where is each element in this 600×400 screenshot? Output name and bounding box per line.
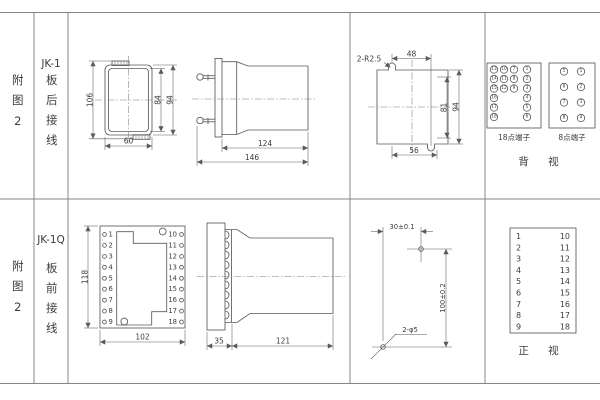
r1-terminal-18: 13 10 7 1 14 11 8 2 15 12 9 3 16 4 17 5 …	[487, 63, 541, 128]
svg-text:2: 2	[526, 76, 529, 82]
technical-drawing-canvas: 106 84 94 60 124 146	[0, 0, 600, 400]
r2-wiring-label: 板前接线	[45, 262, 57, 342]
dim-102: 102	[135, 333, 150, 342]
svg-text:8: 8	[513, 76, 516, 82]
svg-text:14: 14	[168, 274, 177, 282]
svg-text:8: 8	[563, 115, 566, 121]
svg-text:16: 16	[168, 296, 177, 304]
svg-text:5: 5	[109, 274, 113, 282]
svg-text:13: 13	[491, 66, 497, 72]
svg-text:3: 3	[109, 252, 113, 260]
svg-text:5: 5	[563, 68, 566, 74]
r1-panel-cutout: 2-R2.5 48 81 94 56	[357, 49, 463, 159]
svg-text:7: 7	[516, 300, 521, 309]
r1-side-view: 124 146	[192, 59, 316, 167]
svg-text:4: 4	[526, 95, 529, 101]
dim-48: 48	[407, 49, 417, 58]
r1-figure-cell: 附图2	[0, 12, 34, 199]
svg-text:3: 3	[526, 85, 529, 91]
svg-text:4: 4	[109, 263, 113, 271]
svg-text:7: 7	[109, 296, 113, 304]
svg-text:2: 2	[109, 241, 113, 249]
svg-text:10: 10	[501, 66, 507, 72]
cutout-radius-note: 2-R2.5	[357, 55, 382, 64]
svg-text:4: 4	[580, 115, 583, 121]
svg-text:14: 14	[491, 76, 497, 82]
svg-text:4: 4	[516, 266, 521, 275]
terminal-18-label: 18点端子	[484, 132, 544, 143]
r1-figure-label: 附图2	[11, 74, 23, 137]
svg-text:11: 11	[560, 243, 570, 252]
svg-text:9: 9	[513, 85, 516, 91]
svg-text:18: 18	[491, 114, 497, 120]
dim-100: 100±0.2	[439, 283, 447, 312]
svg-text:9: 9	[516, 322, 521, 331]
dim-94-cutout: 94	[452, 102, 461, 112]
dim-60: 60	[124, 137, 134, 146]
r2-wiring-cell: 板前接线	[34, 260, 68, 344]
dim-35: 35	[214, 337, 224, 346]
hole-note: 2-φ5	[402, 326, 418, 334]
rear-view-label: 背 视	[485, 154, 600, 169]
terminal-8-label: 8点端子	[547, 132, 597, 143]
svg-text:5: 5	[526, 104, 529, 110]
svg-text:9: 9	[109, 318, 113, 326]
r2-drill-plan: 2-φ5 30±0.1 100±0.2	[371, 223, 452, 359]
svg-text:3: 3	[580, 99, 583, 105]
svg-text:17: 17	[491, 104, 497, 110]
r1-wiring-label: 板后接线	[45, 74, 57, 154]
r2-figure-label: 附图2	[11, 260, 23, 323]
svg-text:2: 2	[516, 243, 521, 252]
svg-text:18: 18	[560, 322, 570, 331]
svg-text:11: 11	[501, 76, 507, 82]
svg-text:13: 13	[560, 266, 570, 275]
dim-84: 84	[154, 95, 163, 105]
svg-text:5: 5	[516, 277, 521, 286]
svg-text:13: 13	[168, 263, 177, 271]
svg-text:12: 12	[168, 252, 177, 260]
dim-146: 146	[245, 153, 260, 162]
svg-text:15: 15	[491, 85, 497, 91]
front-view-label: 正 视	[485, 343, 600, 358]
svg-text:1: 1	[580, 68, 583, 74]
svg-text:6: 6	[526, 114, 529, 120]
svg-text:6: 6	[563, 84, 566, 90]
svg-text:2: 2	[580, 84, 583, 90]
svg-text:11: 11	[168, 241, 177, 249]
svg-text:18: 18	[168, 318, 177, 326]
svg-text:16: 16	[560, 300, 570, 309]
svg-text:16: 16	[491, 95, 497, 101]
r2-side-view: 35 121	[197, 223, 345, 350]
dim-124: 124	[258, 139, 273, 148]
svg-text:17: 17	[168, 307, 177, 315]
svg-text:12: 12	[560, 255, 570, 264]
r2-terminal-table: 110 211 312 413 514 615 716 817 918	[510, 228, 576, 333]
svg-text:7: 7	[563, 99, 566, 105]
svg-text:1: 1	[516, 232, 521, 241]
svg-text:1: 1	[109, 231, 113, 239]
svg-text:14: 14	[560, 277, 570, 286]
dim-106: 106	[86, 93, 95, 108]
svg-text:10: 10	[560, 232, 570, 241]
svg-text:6: 6	[109, 285, 113, 293]
svg-text:15: 15	[560, 289, 570, 298]
svg-text:8: 8	[516, 311, 521, 320]
svg-text:7: 7	[513, 66, 516, 72]
r2-figure-cell: 附图2	[0, 199, 34, 383]
r1-model-label: JK-1	[34, 58, 68, 70]
dim-118: 118	[81, 270, 90, 285]
dim-94: 94	[166, 95, 175, 105]
dim-56: 56	[409, 146, 419, 155]
svg-text:6: 6	[516, 289, 521, 298]
svg-text:12: 12	[501, 85, 507, 91]
r1-wiring-cell: 板后接线	[34, 72, 68, 156]
dim-81: 81	[440, 103, 449, 113]
svg-text:15: 15	[168, 285, 177, 293]
r1-terminal-8: 5 1 6 2 7 3 8 4	[549, 63, 595, 128]
dim-121: 121	[276, 337, 291, 346]
svg-text:10: 10	[168, 231, 177, 239]
r2-model-label: JK-1Q	[34, 234, 68, 246]
svg-text:1: 1	[526, 66, 529, 72]
svg-text:8: 8	[109, 307, 113, 315]
svg-text:3: 3	[516, 255, 521, 264]
dim-30: 30±0.1	[389, 223, 414, 231]
r1-front-view: 106 84 94 60	[86, 56, 179, 150]
r2-panel-front-view: 1 2 3 4 5 6 7 8 9 10 11 12 13 14 15 16 1…	[81, 226, 186, 346]
svg-text:17: 17	[560, 311, 570, 320]
